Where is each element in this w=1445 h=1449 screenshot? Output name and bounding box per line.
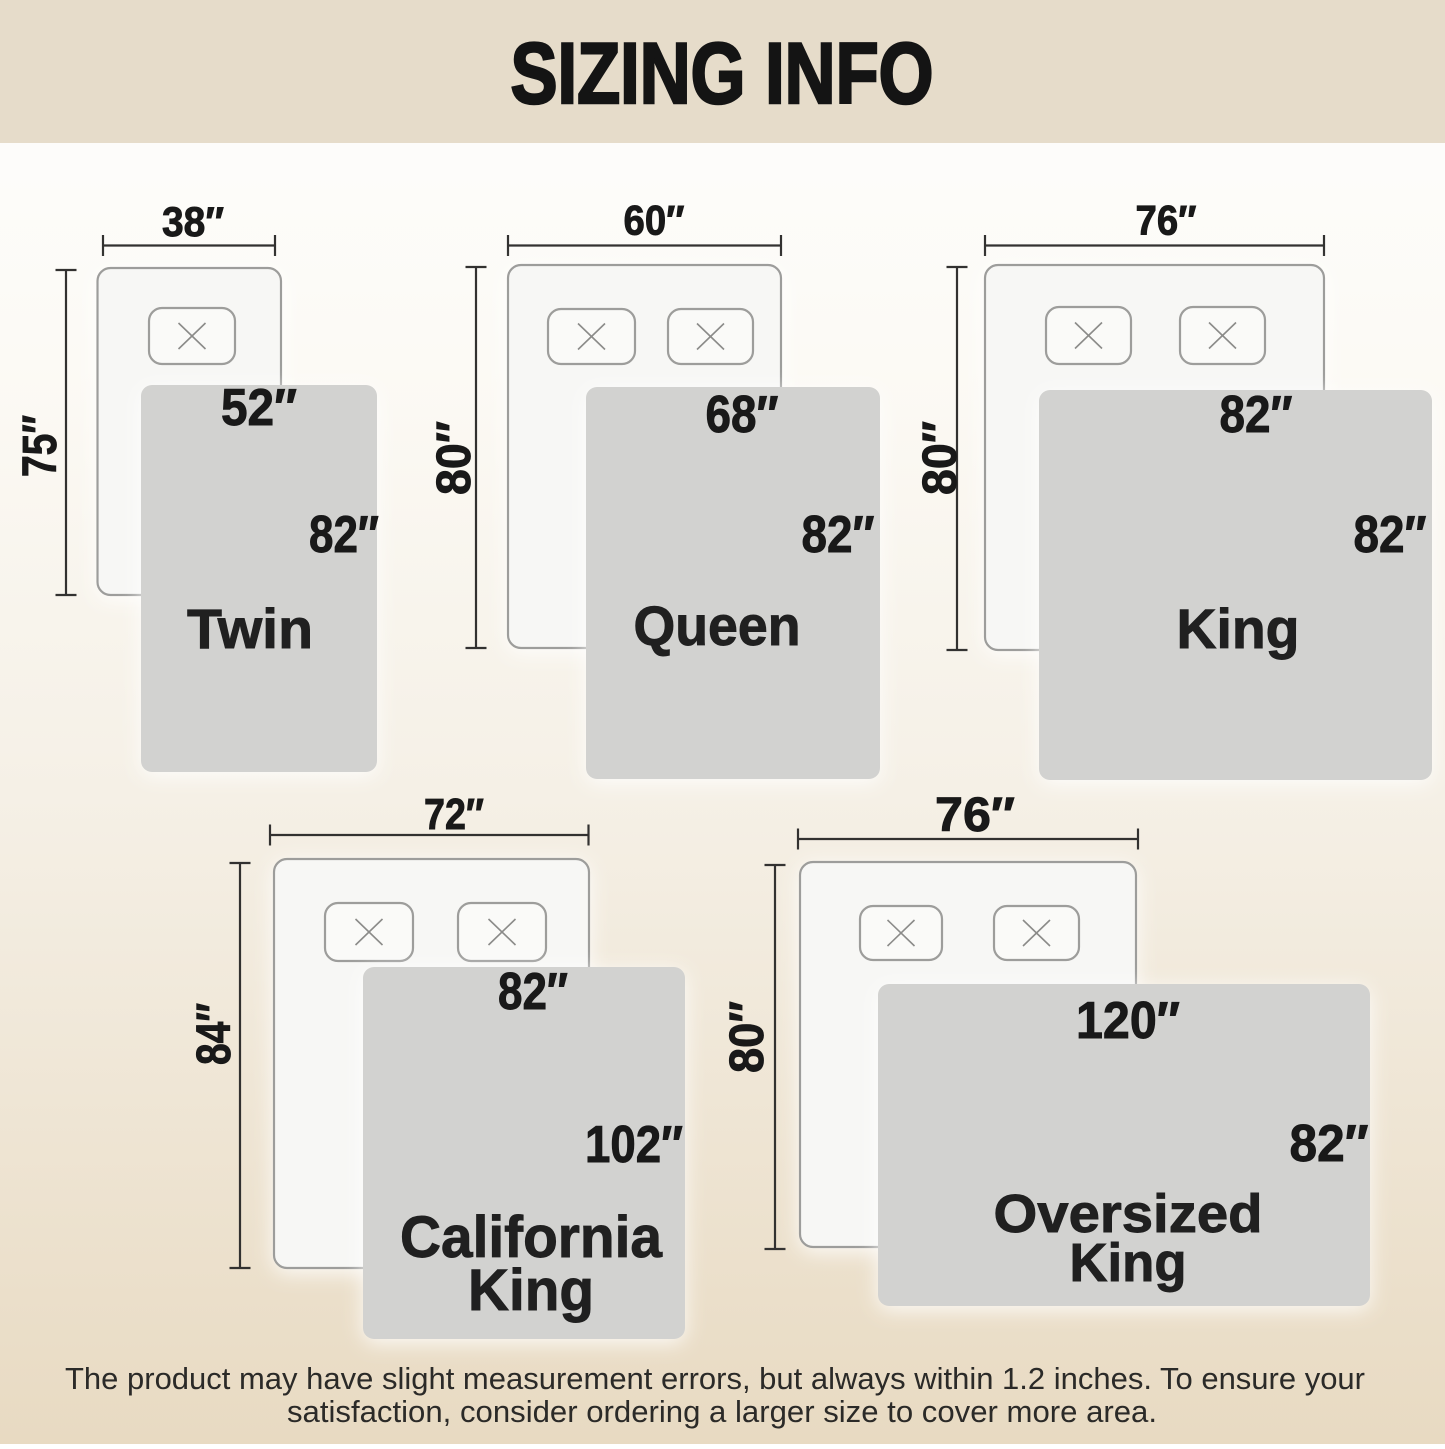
svg-text:60″: 60″	[624, 197, 685, 244]
svg-text:75″: 75″	[14, 415, 67, 477]
svg-text:satisfaction, consider orderin: satisfaction, consider ordering a larger…	[287, 1394, 1157, 1429]
svg-text:76″: 76″	[1136, 197, 1197, 244]
svg-text:82″: 82″	[1290, 1115, 1369, 1173]
svg-text:Queen: Queen	[634, 594, 801, 657]
svg-text:Twin: Twin	[187, 597, 313, 660]
svg-text:King: King	[468, 1258, 594, 1323]
svg-text:68″: 68″	[706, 386, 779, 444]
svg-text:38″: 38″	[162, 198, 224, 245]
svg-text:52″: 52″	[221, 379, 297, 437]
svg-text:SIZING INFO: SIZING INFO	[511, 26, 934, 122]
svg-text:80″: 80″	[428, 421, 481, 495]
svg-text:80″: 80″	[721, 1001, 774, 1073]
svg-text:102″: 102″	[585, 1116, 683, 1174]
svg-text:82″: 82″	[1220, 386, 1293, 444]
svg-text:King: King	[1177, 597, 1300, 660]
svg-text:King: King	[1070, 1233, 1187, 1293]
svg-text:76″: 76″	[935, 789, 1015, 842]
svg-text:82″: 82″	[309, 506, 379, 564]
svg-text:82″: 82″	[498, 963, 568, 1021]
svg-text:The product may have slight me: The product may have slight measurement …	[65, 1361, 1365, 1396]
svg-text:84″: 84″	[188, 1003, 241, 1065]
svg-text:72″: 72″	[424, 790, 484, 839]
svg-text:82″: 82″	[1354, 506, 1427, 564]
svg-text:120″: 120″	[1076, 992, 1180, 1050]
svg-text:80″: 80″	[914, 421, 967, 495]
svg-text:82″: 82″	[802, 506, 875, 564]
